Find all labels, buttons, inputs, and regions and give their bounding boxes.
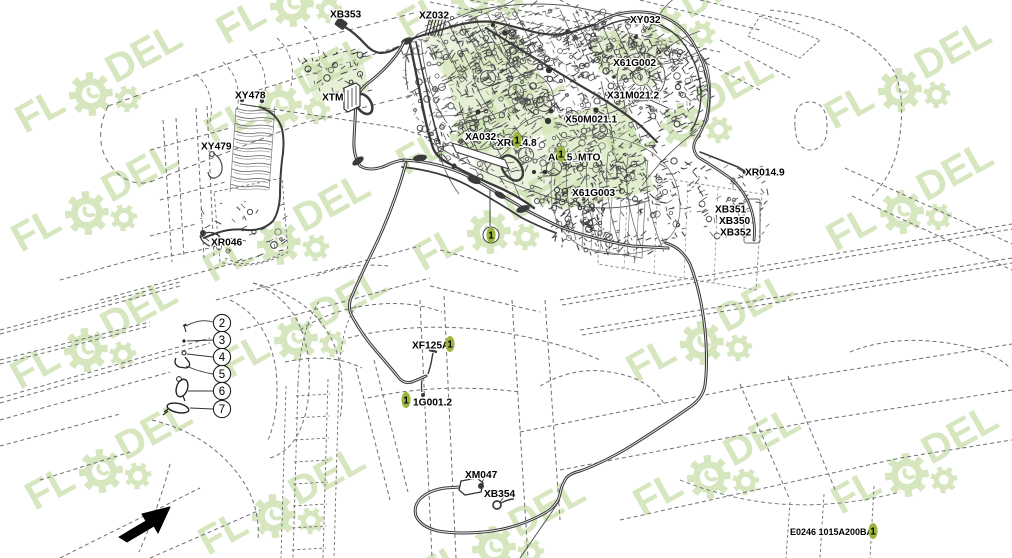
svg-text:1G001.2: 1G001.2 [413,398,452,409]
svg-text:XZ032: XZ032 [419,11,449,22]
svg-text:X50M021.1: X50M021.1 [565,115,617,126]
svg-text:XY032: XY032 [630,15,661,26]
svg-text:FL: FL [626,463,690,525]
svg-text:X61G003: X61G003 [572,188,615,199]
svg-text:XF125A: XF125A [412,341,450,352]
svg-text:XR046: XR046 [211,238,242,249]
svg-text:1: 1 [403,396,409,407]
svg-text:1: 1 [514,136,520,147]
svg-text:1: 1 [447,340,453,351]
svg-text:XY479: XY479 [201,142,232,153]
svg-text:XTM: XTM [322,93,344,104]
svg-text:6: 6 [219,386,225,398]
svg-text:X31M021.2: X31M021.2 [607,91,659,102]
svg-text:DEL: DEL [914,396,1005,473]
svg-text:E0246 1015A200BA: E0246 1015A200BA [790,527,874,537]
svg-text:FL: FL [824,461,888,523]
svg-text:FL: FL [406,218,470,280]
svg-text:FL: FL [817,76,881,138]
svg-text:FL: FL [411,534,475,558]
svg-text:DEL: DEL [108,392,199,469]
svg-text:7: 7 [219,404,225,416]
svg-text:XB352: XB352 [720,228,751,239]
svg-text:1: 1 [558,150,564,161]
svg-text:FL: FL [619,329,683,391]
svg-text:XR014.9: XR014.9 [745,168,785,179]
svg-text:X61G002: X61G002 [613,58,656,69]
svg-text:FL: FL [209,0,273,53]
svg-text:FL: FL [18,457,82,519]
svg-text:XB353: XB353 [330,10,361,21]
svg-text:DEL: DEL [909,133,1000,210]
svg-text:XB351: XB351 [715,205,746,216]
svg-text:DEL: DEL [709,264,800,341]
svg-text:DEL: DEL [907,11,998,88]
svg-text:FL: FL [191,502,255,558]
svg-text:DEL: DEL [501,469,592,546]
svg-text:XA032: XA032 [465,132,496,143]
svg-text:XY478: XY478 [235,91,266,102]
svg-text:DEL: DEL [94,134,185,211]
svg-text:5: 5 [219,369,225,381]
svg-text:4: 4 [219,352,226,364]
svg-text:1: 1 [488,231,494,242]
svg-text:DEL: DEL [716,398,807,475]
svg-text:A015_MTO: A015_MTO [548,153,601,164]
svg-text:XB354: XB354 [484,489,515,500]
svg-text:DEL: DEL [303,260,394,337]
svg-text:DEL: DEL [93,271,184,348]
svg-text:DEL: DEL [98,15,189,92]
svg-text:FL: FL [8,80,72,142]
svg-text:2: 2 [219,318,225,330]
svg-text:FL: FL [4,199,68,261]
svg-text:3: 3 [219,335,225,347]
svg-text:DEL: DEL [286,164,377,241]
svg-text:XM047: XM047 [465,470,498,481]
svg-text:FL: FL [819,198,883,260]
svg-text:XB350: XB350 [719,216,750,227]
svg-text:1: 1 [870,527,876,538]
svg-text:DEL: DEL [672,0,763,27]
